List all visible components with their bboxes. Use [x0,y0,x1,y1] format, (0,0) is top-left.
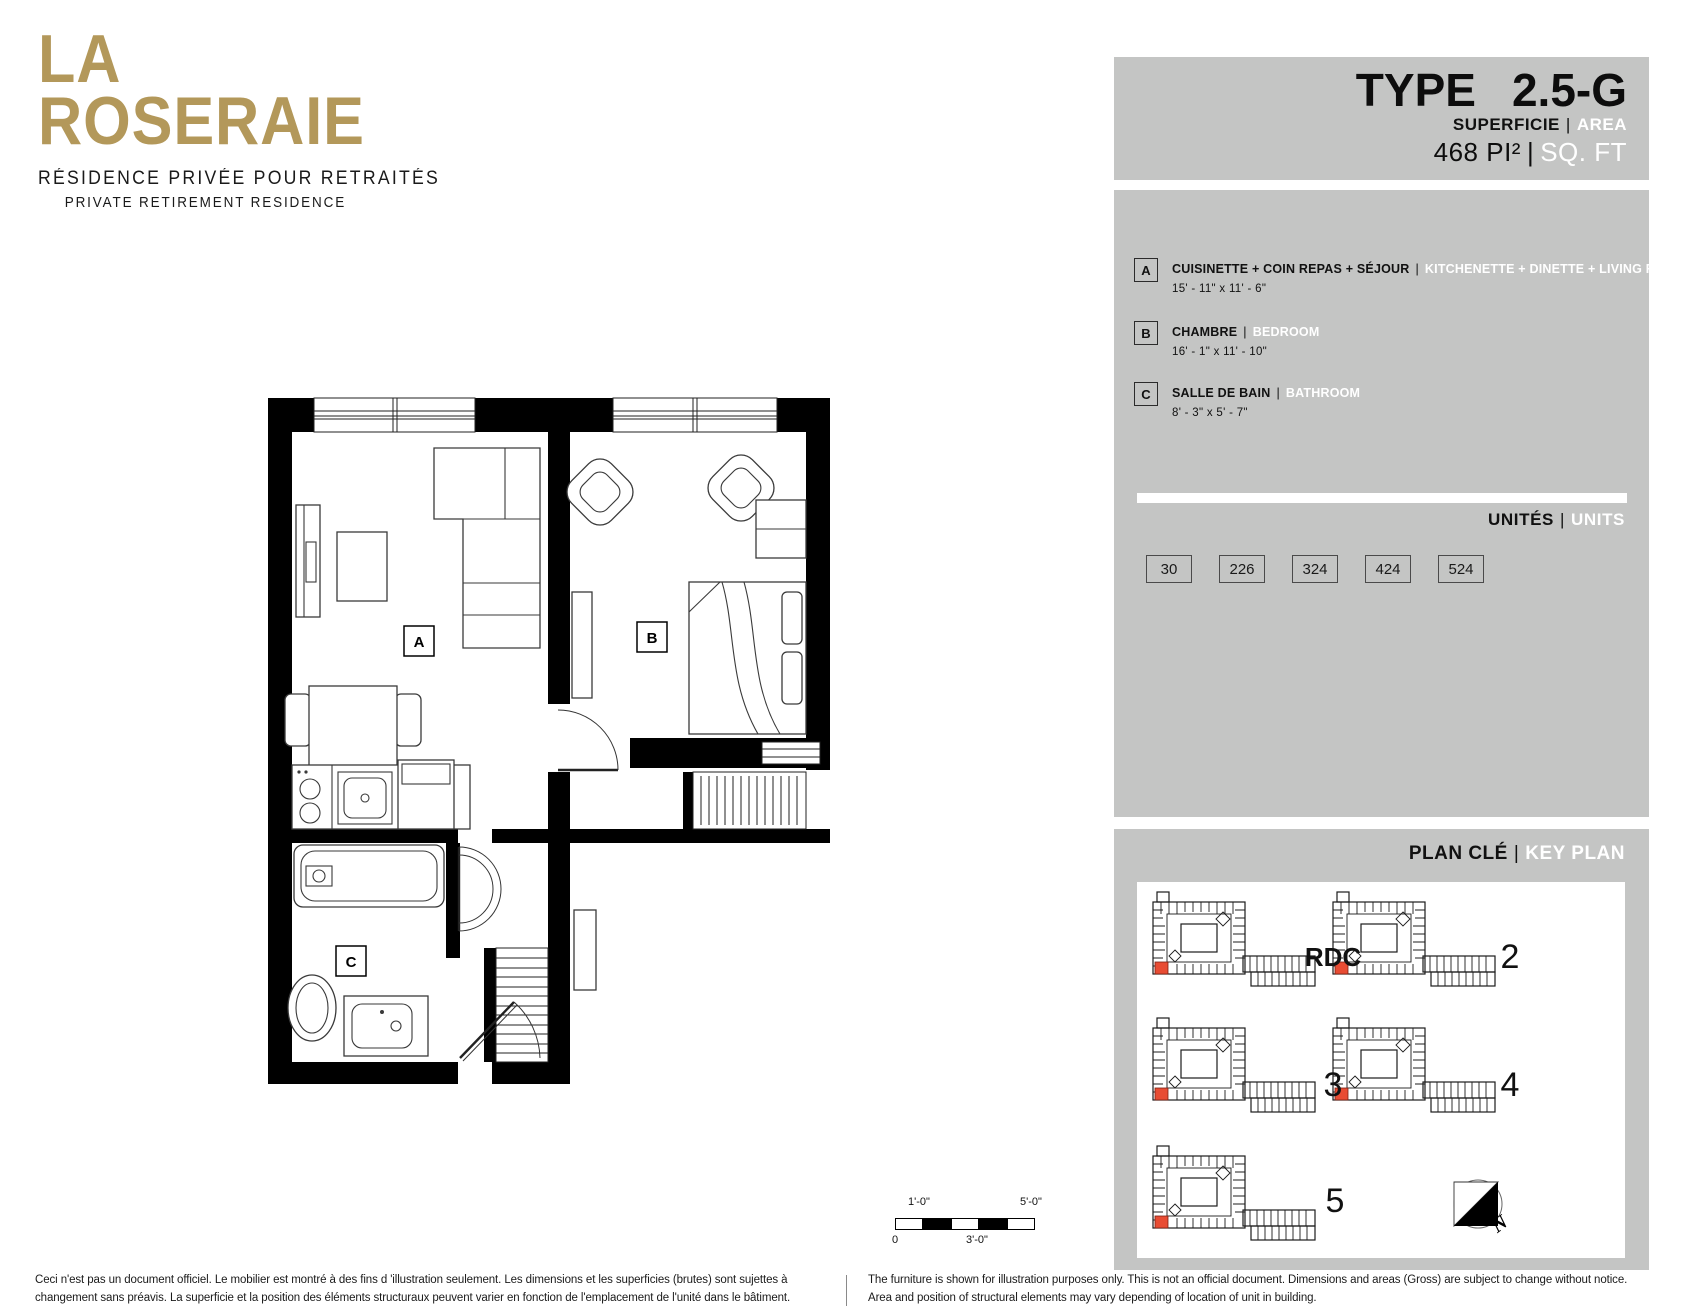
bedroom-closet [693,772,806,829]
units-label-fr: UNITÉS [1488,510,1554,529]
room-dimensions: 8' - 3" x 5' - 7" [1172,407,1360,419]
key-plan-panel: PLAN CLÉ|KEY PLAN [1114,829,1649,1270]
appliance [398,760,454,829]
unit-number: 324 [1292,555,1338,583]
unit-number-list: 30 226 324 424 524 [1146,555,1484,583]
bathtub [294,845,444,907]
type-label: TYPE [1356,63,1476,117]
room-name-en: KITCHENETTE + DINETTE + LIVING ROOM [1425,262,1686,276]
room-title: CHAMBRE|BEDROOM [1172,321,1319,339]
scale-label-1ft: 1'-0" [908,1196,930,1208]
closet-doors [762,742,820,764]
kitchen-counter [292,760,470,829]
svg-text:A: A [414,634,425,651]
room-legend-panel: A CUISINETTE + COIN REPAS + SÉJOUR|KITCH… [1114,190,1649,817]
area-value-fr: 468 PI² [1434,137,1521,167]
type-area-panel: TYPE 2.5-G SUPERFICIE|AREA 468 PI²|SQ. F… [1114,57,1649,180]
key-plan-label-en: KEY PLAN [1525,843,1625,864]
brand-logo: LA ROSERAIE RÉSIDENCE PRIVÉE POUR RETRAI… [38,28,470,211]
brand-tagline-en: PRIVATE RETIREMENT RESIDENCE [38,195,373,211]
coffee-table [337,532,387,601]
unit-number: 524 [1438,555,1484,583]
window [613,398,777,432]
svg-text:C: C [346,954,357,971]
area-label-en: AREA [1577,115,1627,134]
unit-number: 30 [1146,555,1192,583]
room-letter-badge: A [1134,258,1158,282]
window [314,398,475,432]
units-divider-bar [1137,493,1627,503]
separator: | [1270,386,1285,400]
units-heading: UNITÉS|UNITS [1488,510,1625,530]
entry-closet [496,948,548,1062]
room-title: SALLE DE BAIN|BATHROOM [1172,382,1360,400]
brochure-page: LA ROSERAIE RÉSIDENCE PRIVÉE POUR RETRAI… [0,0,1690,1306]
room-title: CUISINETTE + COIN REPAS + SÉJOUR|KITCHEN… [1172,258,1685,276]
disclaimer-en-line1: The furniture is shown for illustration … [868,1272,1668,1290]
legend-row-a: A CUISINETTE + COIN REPAS + SÉJOUR|KITCH… [1134,258,1685,295]
area-label-row: SUPERFICIE|AREA [1453,115,1627,135]
key-plan-label-fr: PLAN CLÉ [1409,843,1508,864]
svg-text:B: B [647,630,658,647]
scale-label-3ft: 3'-0" [966,1234,988,1246]
disclaimer-en-line2: Area and position of structural elements… [868,1290,1668,1306]
key-plan-drawing: RDC 2 3 4 5 N [1137,882,1625,1258]
dresser [572,592,592,698]
scale-bar: 1'-0" 5'-0" 0 3'-0" [880,1196,1060,1254]
bathroom-sink [344,996,428,1056]
key-plan-map: RDC 2 3 4 5 N [1137,882,1625,1258]
room-label-c: C [336,946,366,976]
room-letter-badge: B [1134,321,1158,345]
nightstand [756,500,806,558]
brand-tagline-fr: RÉSIDENCE PRIVÉE POUR RETRAITÉS [38,168,440,190]
pillow [782,652,802,704]
room-name-fr: SALLE DE BAIN [1172,386,1270,400]
bed [689,582,806,734]
pillow [782,592,802,644]
unit-number: 226 [1219,555,1265,583]
key-plan-floor-4 [1333,1018,1495,1112]
disclaimer-en: The furniture is shown for illustration … [868,1272,1668,1306]
unit-type-heading: TYPE 2.5-G [1356,63,1627,117]
brand-line1: LA [38,28,427,90]
floor-plan-drawing: A B C [250,390,850,1090]
disclaimer-fr: Ceci n'est pas un document officiel. Le … [35,1272,810,1306]
sofa [434,448,540,648]
scale-label-5ft: 5'-0" [1020,1196,1042,1208]
key-plan-heading: PLAN CLÉ|KEY PLAN [1409,843,1625,865]
unit-number: 424 [1365,555,1411,583]
separator: | [1560,115,1577,134]
separator: | [1554,510,1571,529]
floor-label-2: 2 [1501,938,1520,976]
dining-table [285,686,421,766]
room-name-fr: CUISINETTE + COIN REPAS + SÉJOUR [1172,262,1409,276]
key-plan-floor-3 [1153,1018,1315,1112]
room-dimensions: 16' - 1" x 11' - 10" [1172,346,1319,358]
area-value-en: SQ. FT [1540,137,1627,167]
floor-label-5: 5 [1326,1182,1345,1220]
north-arrow-icon: N [1454,1180,1513,1238]
separator: | [1237,325,1252,339]
room-label-a: A [404,626,434,656]
units-label-en: UNITS [1571,510,1625,529]
area-value-row: 468 PI²|SQ. FT [1434,137,1627,168]
brand-line2: ROSERAIE [38,90,427,152]
area-label-fr: SUPERFICIE [1453,115,1560,134]
footer-divider [846,1275,847,1306]
key-plan-floor-5 [1153,1146,1315,1240]
bedroom-door [558,710,618,770]
hall-door [459,847,501,931]
floor-label-3: 3 [1324,1066,1343,1104]
separator: | [1508,843,1525,864]
legend-row-b: B CHAMBRE|BEDROOM 16' - 1" x 11' - 10" [1134,321,1319,358]
room-name-en: BATHROOM [1286,386,1360,400]
lounge-chair [560,452,639,531]
key-plan-floor-rdc [1153,892,1315,986]
legend-row-c: C SALLE DE BAIN|BATHROOM 8' - 3" x 5' - … [1134,382,1360,419]
room-label-b: B [637,622,667,652]
separator: | [1409,262,1424,276]
hall-cabinet [574,910,596,990]
disclaimer-fr-line2: changement sans préavis. La superficie e… [35,1290,810,1306]
room-dimensions: 15' - 11" x 11' - 6" [1172,283,1685,295]
disclaimer-fr-line1: Ceci n'est pas un document officiel. Le … [35,1272,810,1290]
entry-door [460,1002,540,1061]
separator: | [1521,137,1540,167]
type-value: 2.5-G [1512,63,1627,117]
scale-label-0: 0 [892,1234,898,1246]
room-letter-badge: C [1134,382,1158,406]
toilet [288,975,336,1041]
floor-label-rdc: RDC [1305,942,1362,972]
room-name-en: BEDROOM [1253,325,1320,339]
tv-unit [296,505,320,617]
floor-label-4: 4 [1501,1066,1520,1104]
room-name-fr: CHAMBRE [1172,325,1237,339]
